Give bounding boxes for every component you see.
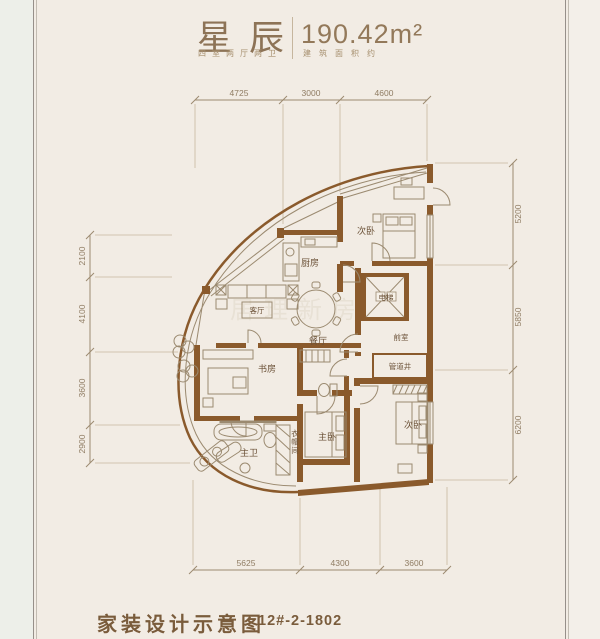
room-label-cloakroom: 衣帽间 bbox=[290, 428, 299, 455]
room-label-master-bedroom: 主卧 bbox=[318, 431, 336, 442]
entry-door-icon bbox=[433, 188, 450, 205]
room-label-front-room: 前室 bbox=[394, 332, 409, 342]
footer-caption: 家装设计示意图 bbox=[97, 608, 265, 637]
dim-right-3: 6200 bbox=[513, 415, 523, 434]
bed-north-icon bbox=[373, 214, 415, 258]
room-label-kitchen: 厨房 bbox=[301, 257, 319, 268]
floorplan-drawing: 4725 3000 4600 2100 4100 3600 2900 5200 … bbox=[0, 0, 600, 639]
dim-top-3: 4600 bbox=[375, 88, 394, 98]
dim-extension-lines bbox=[95, 104, 508, 565]
dim-left-1: 2100 bbox=[77, 246, 87, 265]
study-desk-icon bbox=[203, 350, 253, 407]
room-label-master-bath: 主卫 bbox=[240, 447, 258, 458]
bed-south-icon bbox=[396, 393, 428, 473]
room-label-bedroom-north: 次卧 bbox=[357, 225, 375, 236]
bottom-wall bbox=[298, 479, 429, 496]
dimension-lines bbox=[86, 96, 517, 574]
guest-bath-icon bbox=[300, 350, 337, 397]
room-label-dining: 餐厅 bbox=[309, 335, 327, 346]
room-label-bedroom-south: 次卧 bbox=[404, 419, 422, 430]
dim-right-2: 5850 bbox=[513, 307, 523, 326]
dim-left-4: 2900 bbox=[77, 434, 87, 453]
wardrobe-icon bbox=[276, 425, 290, 475]
room-label-living: 客厅 bbox=[250, 305, 265, 315]
floorplan-page: 星辰 四室两厅两卫 190.42m² 建筑面积约 bbox=[0, 0, 600, 639]
closet-hatch-icon bbox=[220, 421, 276, 423]
dimension-labels: 4725 3000 4600 2100 4100 3600 2900 5200 … bbox=[77, 88, 523, 568]
dim-bottom-1: 5625 bbox=[237, 558, 256, 568]
exterior-curved-wall bbox=[179, 166, 429, 492]
dim-right-1: 5200 bbox=[513, 204, 523, 223]
room-label-elevator: 电梯 bbox=[379, 292, 394, 302]
dim-top-1: 4725 bbox=[230, 88, 249, 98]
room-label-pipe-shaft: 管道井 bbox=[389, 361, 412, 371]
dim-bottom-3: 3600 bbox=[405, 558, 424, 568]
dim-top-2: 3000 bbox=[302, 88, 321, 98]
footer-unit-number: 12#-2-1802 bbox=[258, 613, 342, 629]
dim-left-3: 3600 bbox=[77, 378, 87, 397]
dim-left-2: 4100 bbox=[77, 304, 87, 323]
room-label-study: 书房 bbox=[258, 363, 276, 374]
room-labels: 次卧 厨房 客厅 餐厅 电梯 前室 管道井 书房 主卫 衣帽间 主卧 次卧 bbox=[240, 225, 422, 458]
dim-bottom-2: 4300 bbox=[331, 558, 350, 568]
